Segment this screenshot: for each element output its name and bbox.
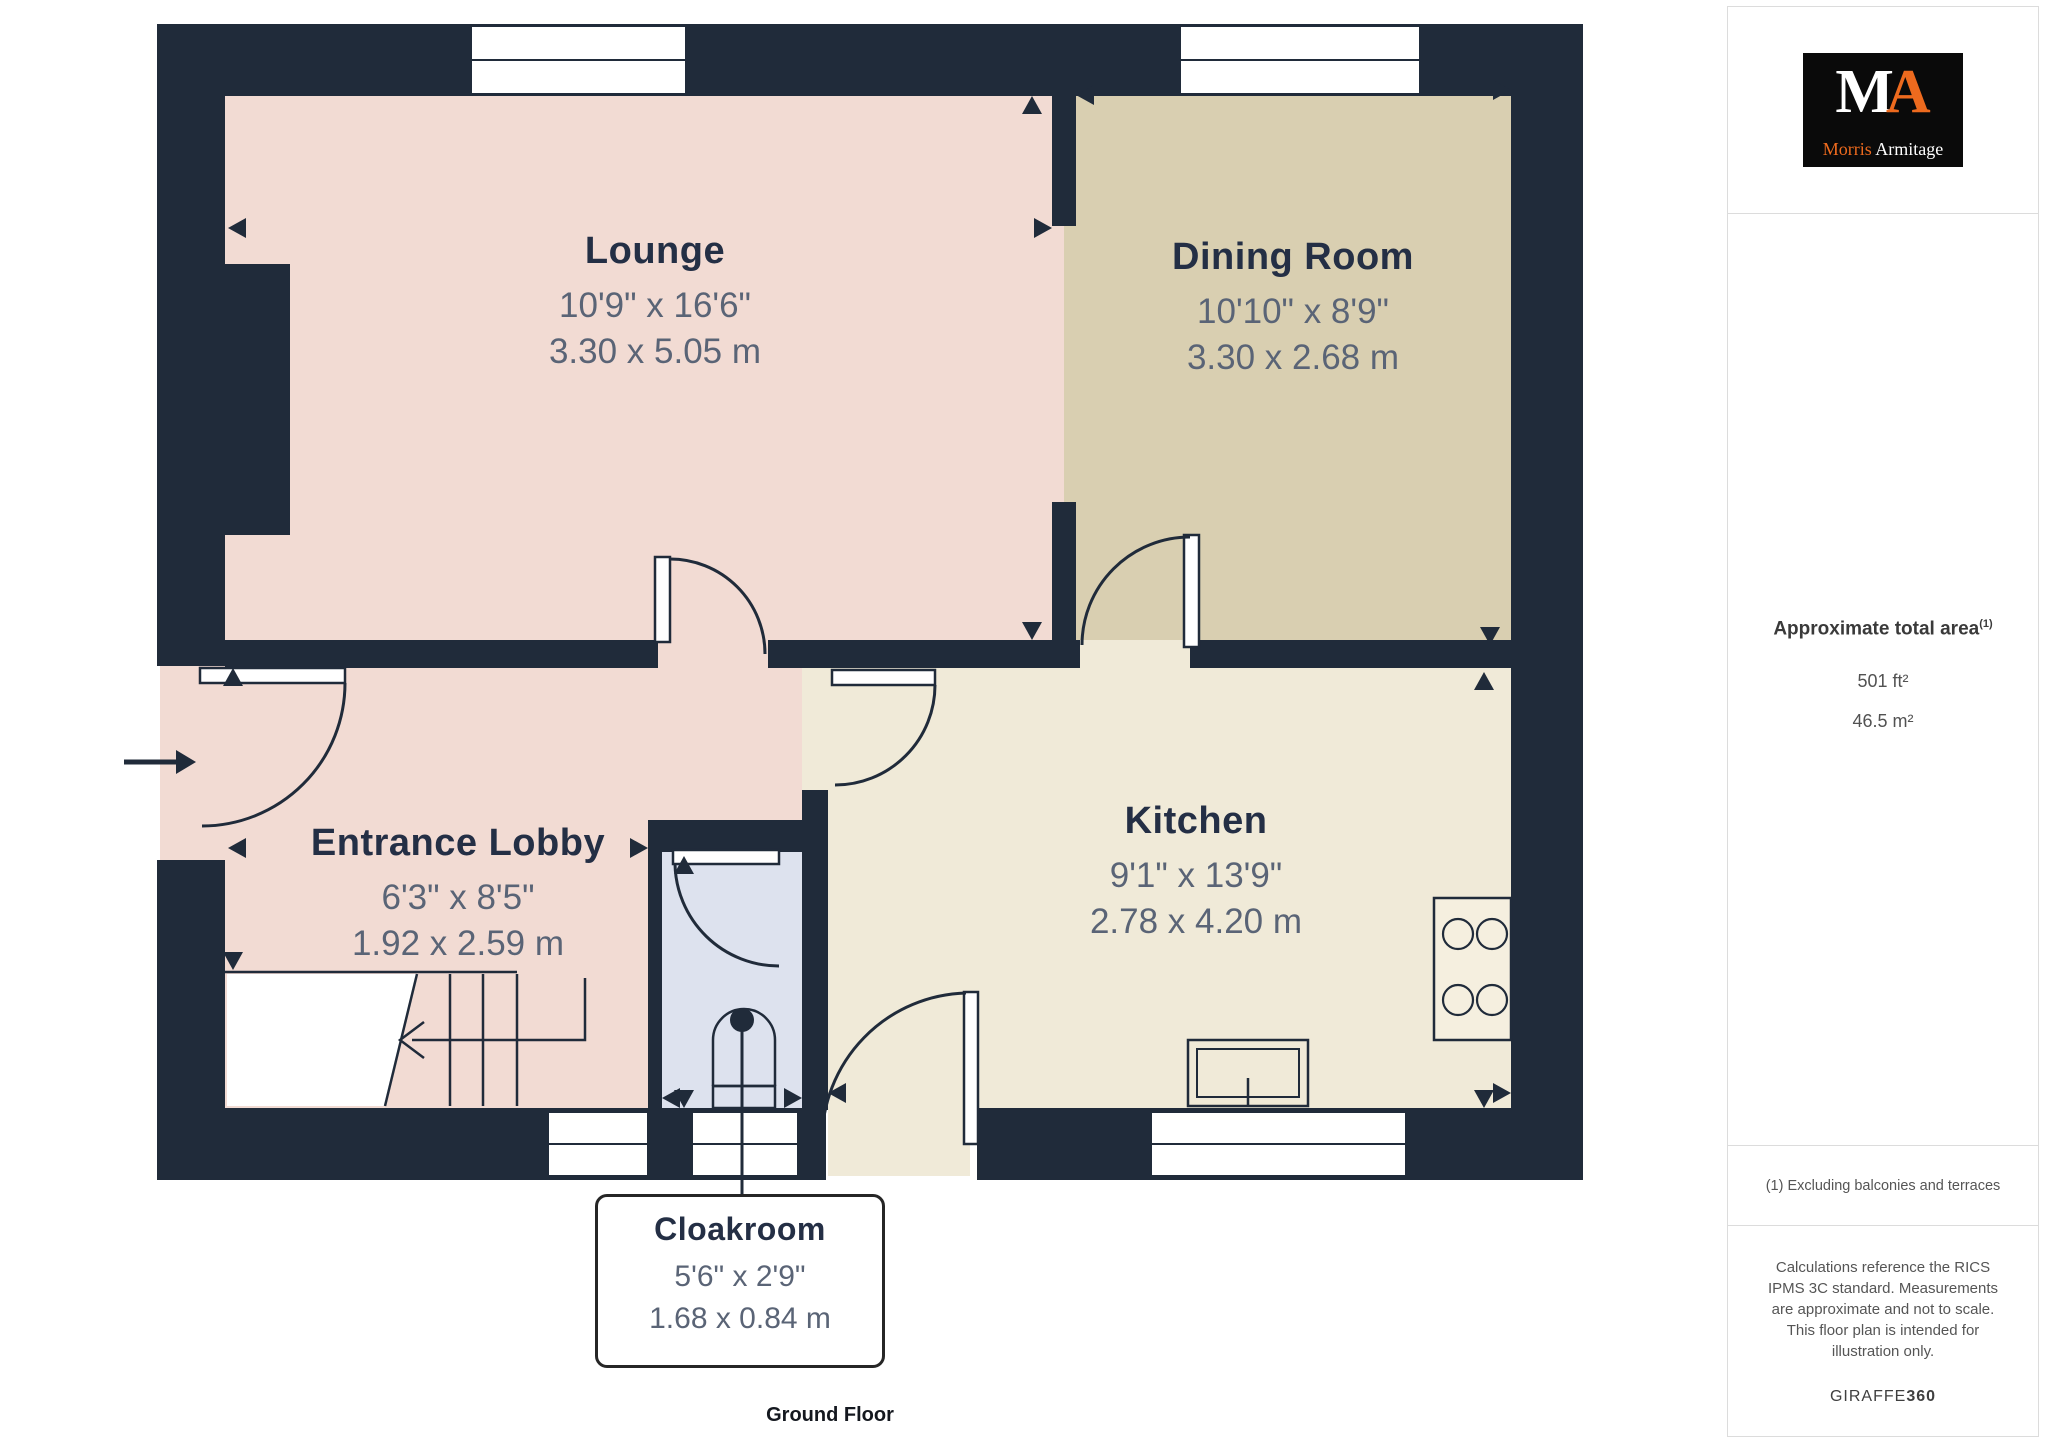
area-imperial: 501 ft² — [1857, 661, 1908, 701]
room-dim-metric: 1.92 x 2.59 m — [311, 921, 605, 967]
logo-monogram: MA — [1835, 63, 1930, 137]
room-name: Entrance Lobby — [311, 822, 605, 865]
room-dim-metric: 1.68 x 0.84 m — [598, 1298, 882, 1340]
sidebar-area-section: Approximate total area(1) 501 ft² 46.5 m… — [1728, 214, 2038, 1146]
area-title-superscript: (1) — [1979, 618, 1992, 630]
area-metric: 46.5 m² — [1852, 701, 1913, 741]
room-label-kitchen: Kitchen 9'1" x 13'9" 2.78 x 4.20 m — [1090, 800, 1302, 945]
giraffe360-brand: GIRAFFE360 — [1830, 1388, 1936, 1406]
sidebar-logo-section: MA Morris Armitage — [1728, 7, 2038, 214]
room-name: Dining Room — [1172, 236, 1414, 279]
room-name: Cloakroom — [598, 1211, 882, 1248]
agency-logo: MA Morris Armitage — [1803, 53, 1963, 167]
disclaimer-text: Calculations reference the RICS IPMS 3C … — [1758, 1257, 2008, 1362]
room-dim-metric: 2.78 x 4.20 m — [1090, 899, 1302, 945]
chimney-breast — [225, 264, 290, 535]
footnote-text: (1) Excluding balconies and terraces — [1766, 1178, 2001, 1194]
hob-icon — [1434, 898, 1511, 1040]
room-dim-imperial: 9'1" x 13'9" — [1090, 853, 1302, 899]
sidebar-footnote-section: (1) Excluding balconies and terraces — [1728, 1146, 2038, 1226]
sidebar-disclaimer-section: Calculations reference the RICS IPMS 3C … — [1728, 1226, 2038, 1436]
room-floor-cloakroom — [662, 852, 802, 1110]
room-label-dining: Dining Room 10'10" x 8'9" 3.30 x 2.68 m — [1172, 236, 1414, 381]
floorplan-page: Lounge 10'9" x 16'6" 3.30 x 5.05 m Dinin… — [0, 0, 2048, 1448]
room-dim-metric: 3.30 x 5.05 m — [549, 329, 761, 375]
room-name: Lounge — [549, 230, 761, 273]
room-dim-imperial: 10'9" x 16'6" — [549, 283, 761, 329]
room-dim-metric: 3.30 x 2.68 m — [1172, 335, 1414, 381]
room-label-lobby: Entrance Lobby 6'3" x 8'5" 1.92 x 2.59 m — [311, 822, 605, 967]
room-label-lounge: Lounge 10'9" x 16'6" 3.30 x 5.05 m — [549, 230, 761, 375]
logo-wordmark: Morris Armitage — [1823, 139, 1944, 160]
room-dim-imperial: 6'3" x 8'5" — [311, 875, 605, 921]
room-label-cloakroom-callout: Cloakroom 5'6" x 2'9" 1.68 x 0.84 m — [595, 1194, 885, 1368]
logo-letter-a: A — [1886, 58, 1931, 126]
area-title: Approximate total area(1) — [1773, 618, 1992, 640]
floor-caption: Ground Floor — [766, 1404, 894, 1427]
stairs-void — [227, 974, 417, 1106]
room-dim-imperial: 5'6" x 2'9" — [598, 1256, 882, 1298]
sidebar: MA Morris Armitage Approximate total are… — [1727, 6, 2039, 1437]
room-dim-imperial: 10'10" x 8'9" — [1172, 289, 1414, 335]
room-name: Kitchen — [1090, 800, 1302, 843]
